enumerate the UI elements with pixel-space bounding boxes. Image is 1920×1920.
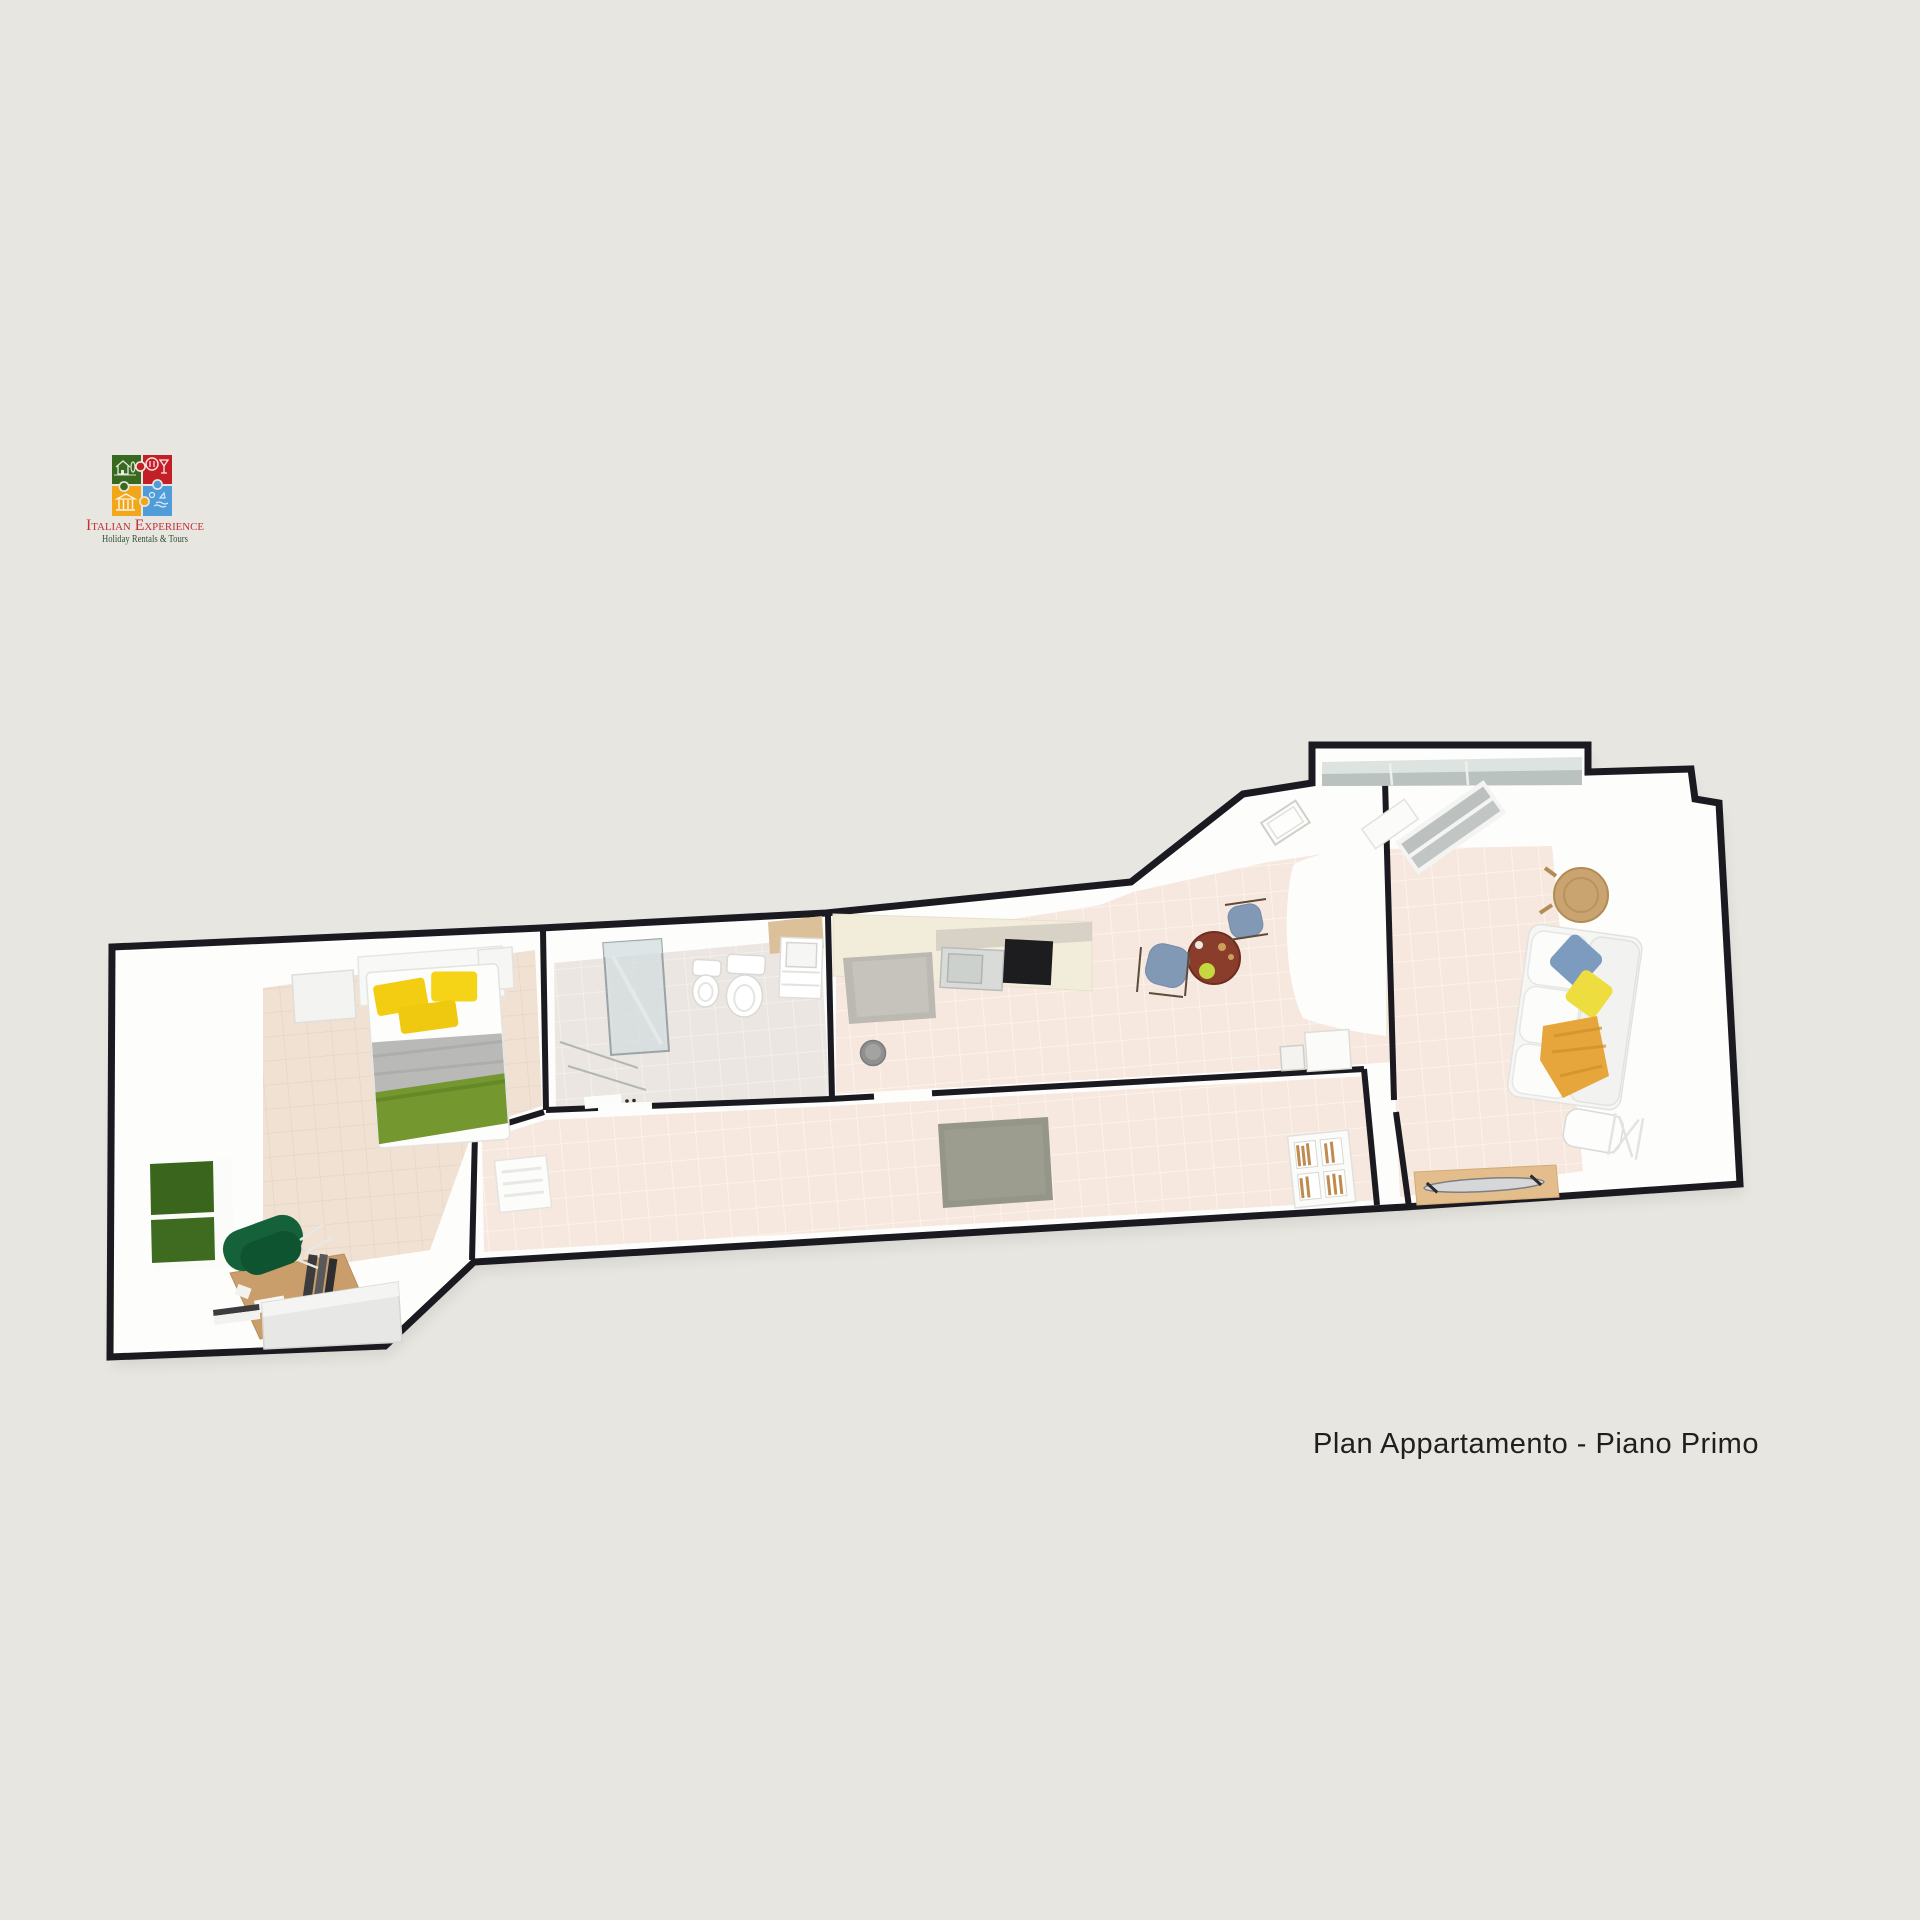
- svg-text:Italian Experience: Italian Experience: [86, 517, 204, 534]
- svg-text:Holiday Rentals & Tours: Holiday Rentals & Tours: [102, 534, 188, 545]
- svg-text:Plan Appartamento - Piano Prim: Plan Appartamento - Piano Primo: [1313, 1428, 1759, 1460]
